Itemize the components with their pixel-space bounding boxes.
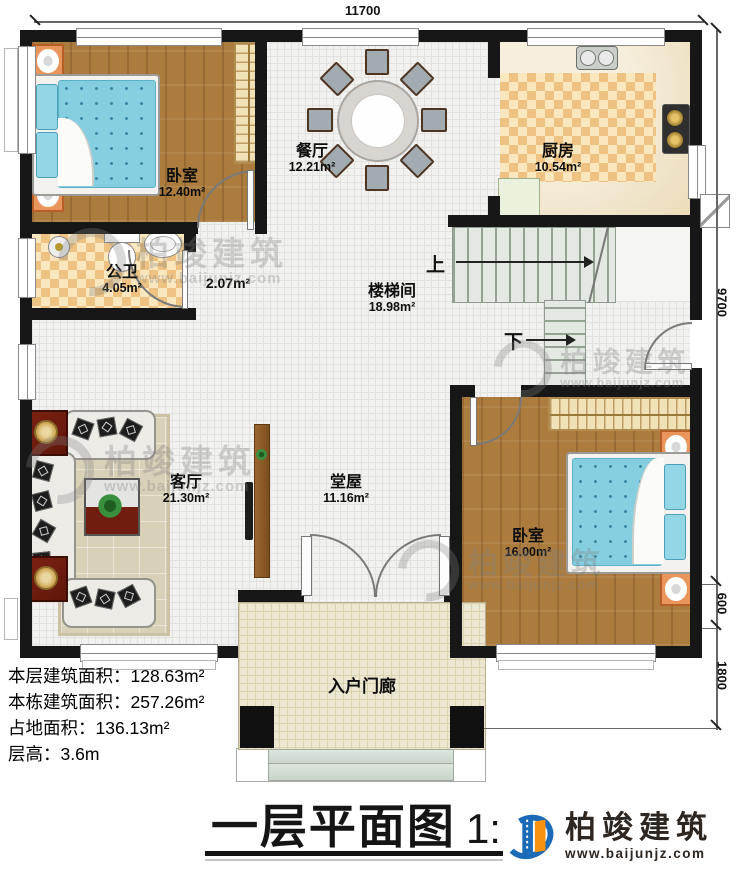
info-line: 本栋建筑面积：257.26m² bbox=[8, 689, 204, 715]
dining-table bbox=[337, 80, 419, 162]
room-label-living: 客厅21.30m² bbox=[163, 474, 210, 505]
room-label-dining: 餐厅12.21m² bbox=[289, 143, 336, 174]
sofa-pillow bbox=[94, 588, 115, 609]
door-leaf-bedroom1 bbox=[247, 170, 254, 230]
wall bbox=[488, 42, 500, 78]
plant bbox=[96, 492, 124, 520]
dimension-right-porch: 1800 bbox=[715, 656, 730, 696]
room-label-stairwell: 楼梯间18.98m² bbox=[368, 283, 416, 314]
dimension-line-top bbox=[34, 21, 704, 23]
window-sill bbox=[4, 598, 18, 640]
dining-chair bbox=[421, 108, 447, 132]
room-label-corridor: 2.07m² bbox=[206, 276, 250, 291]
floor-plan-canvas: 上 下 卧室12.40m² bbox=[0, 0, 750, 879]
fridge bbox=[498, 178, 540, 219]
brand-name: 柏竣建筑 bbox=[565, 812, 713, 843]
dining-chair bbox=[365, 165, 389, 191]
stair-landing-floor bbox=[614, 227, 690, 301]
window bbox=[18, 344, 36, 400]
wall bbox=[521, 385, 702, 397]
wall bbox=[238, 590, 304, 602]
stairs-down-arrow bbox=[526, 339, 568, 341]
brand-logo-icon bbox=[503, 806, 559, 866]
bed-pillow bbox=[664, 514, 686, 560]
info-line: 本层建筑面积：128.63m² bbox=[8, 663, 204, 689]
window bbox=[688, 145, 706, 199]
porch-column bbox=[450, 706, 484, 748]
brand-url: www.baijunjz.com bbox=[565, 847, 713, 861]
door-leaf-bedroom2 bbox=[470, 397, 477, 446]
room-label-kitchen: 厨房10.54m² bbox=[535, 143, 582, 174]
window bbox=[18, 46, 36, 154]
side-bay-window bbox=[700, 194, 730, 228]
wardrobe bbox=[548, 397, 692, 431]
porch-step bbox=[268, 763, 454, 781]
info-line: 层高：3.6m bbox=[8, 741, 204, 767]
wall bbox=[450, 385, 462, 658]
dimension-tick bbox=[29, 14, 40, 25]
brand-logo: 柏竣建筑 www.baijunjz.com bbox=[503, 806, 713, 866]
wall bbox=[448, 215, 702, 227]
window bbox=[18, 238, 36, 298]
stairs-up-label: 上 bbox=[426, 250, 445, 277]
dimension-extension bbox=[484, 728, 716, 729]
plant bbox=[255, 448, 268, 461]
stairs-down-arrowhead bbox=[566, 334, 576, 346]
wall bbox=[415, 30, 529, 42]
wall bbox=[20, 222, 198, 234]
door-leaf-bathroom bbox=[182, 250, 188, 309]
bed-pillow bbox=[664, 464, 686, 510]
build-info-block: 本层建筑面积：128.63m² 本栋建筑面积：257.26m² 占地面积：136… bbox=[8, 663, 204, 767]
dining-chair bbox=[307, 108, 333, 132]
room-label-hall: 堂屋11.16m² bbox=[323, 474, 369, 505]
stairs-up-arrow bbox=[456, 261, 584, 263]
room-label-bedroom2: 卧室16.00m² bbox=[505, 528, 552, 559]
dimension-extension bbox=[702, 628, 716, 629]
dimension-right-step: 600 bbox=[715, 586, 730, 622]
room-label-porch: 入户门廊 bbox=[328, 678, 396, 697]
room-label-bedroom1: 卧室12.40m² bbox=[159, 168, 206, 199]
window bbox=[302, 28, 419, 46]
door-leaf-side-entry bbox=[645, 363, 692, 370]
sofa-pillow bbox=[97, 417, 118, 438]
info-line: 占地面积：136.13m² bbox=[8, 715, 204, 741]
nightstand bbox=[660, 572, 692, 606]
dimension-right-height: 9700 bbox=[715, 283, 730, 323]
room-label-bathroom: 公卫4.05m² bbox=[102, 264, 142, 295]
dimension-tick bbox=[697, 14, 708, 25]
dimension-top-width: 11700 bbox=[345, 3, 380, 18]
bed-pillow bbox=[36, 84, 58, 130]
porch-floor bbox=[238, 602, 486, 750]
bed-pillow bbox=[36, 132, 58, 178]
stairs-down-flight bbox=[544, 300, 586, 388]
dining-chair bbox=[365, 49, 389, 75]
window bbox=[76, 28, 222, 46]
porch-column bbox=[240, 706, 274, 748]
shower-drain bbox=[48, 236, 70, 258]
stairs-down-label: 下 bbox=[504, 327, 523, 354]
tv bbox=[245, 482, 253, 540]
window-sill bbox=[498, 660, 654, 670]
stove bbox=[662, 104, 690, 154]
wall bbox=[184, 222, 196, 252]
front-door-right-leaf bbox=[439, 536, 450, 596]
window bbox=[527, 28, 665, 46]
wall bbox=[255, 30, 267, 234]
wall bbox=[20, 308, 196, 320]
stairs-up-arrowhead bbox=[584, 256, 594, 268]
kitchen-sink bbox=[576, 46, 618, 70]
window-sill bbox=[4, 48, 18, 152]
table-lamp bbox=[34, 566, 58, 590]
table-lamp bbox=[34, 420, 58, 444]
wall bbox=[690, 368, 702, 658]
title-text: 一层平面图 bbox=[211, 800, 456, 853]
nightstand bbox=[32, 44, 64, 78]
